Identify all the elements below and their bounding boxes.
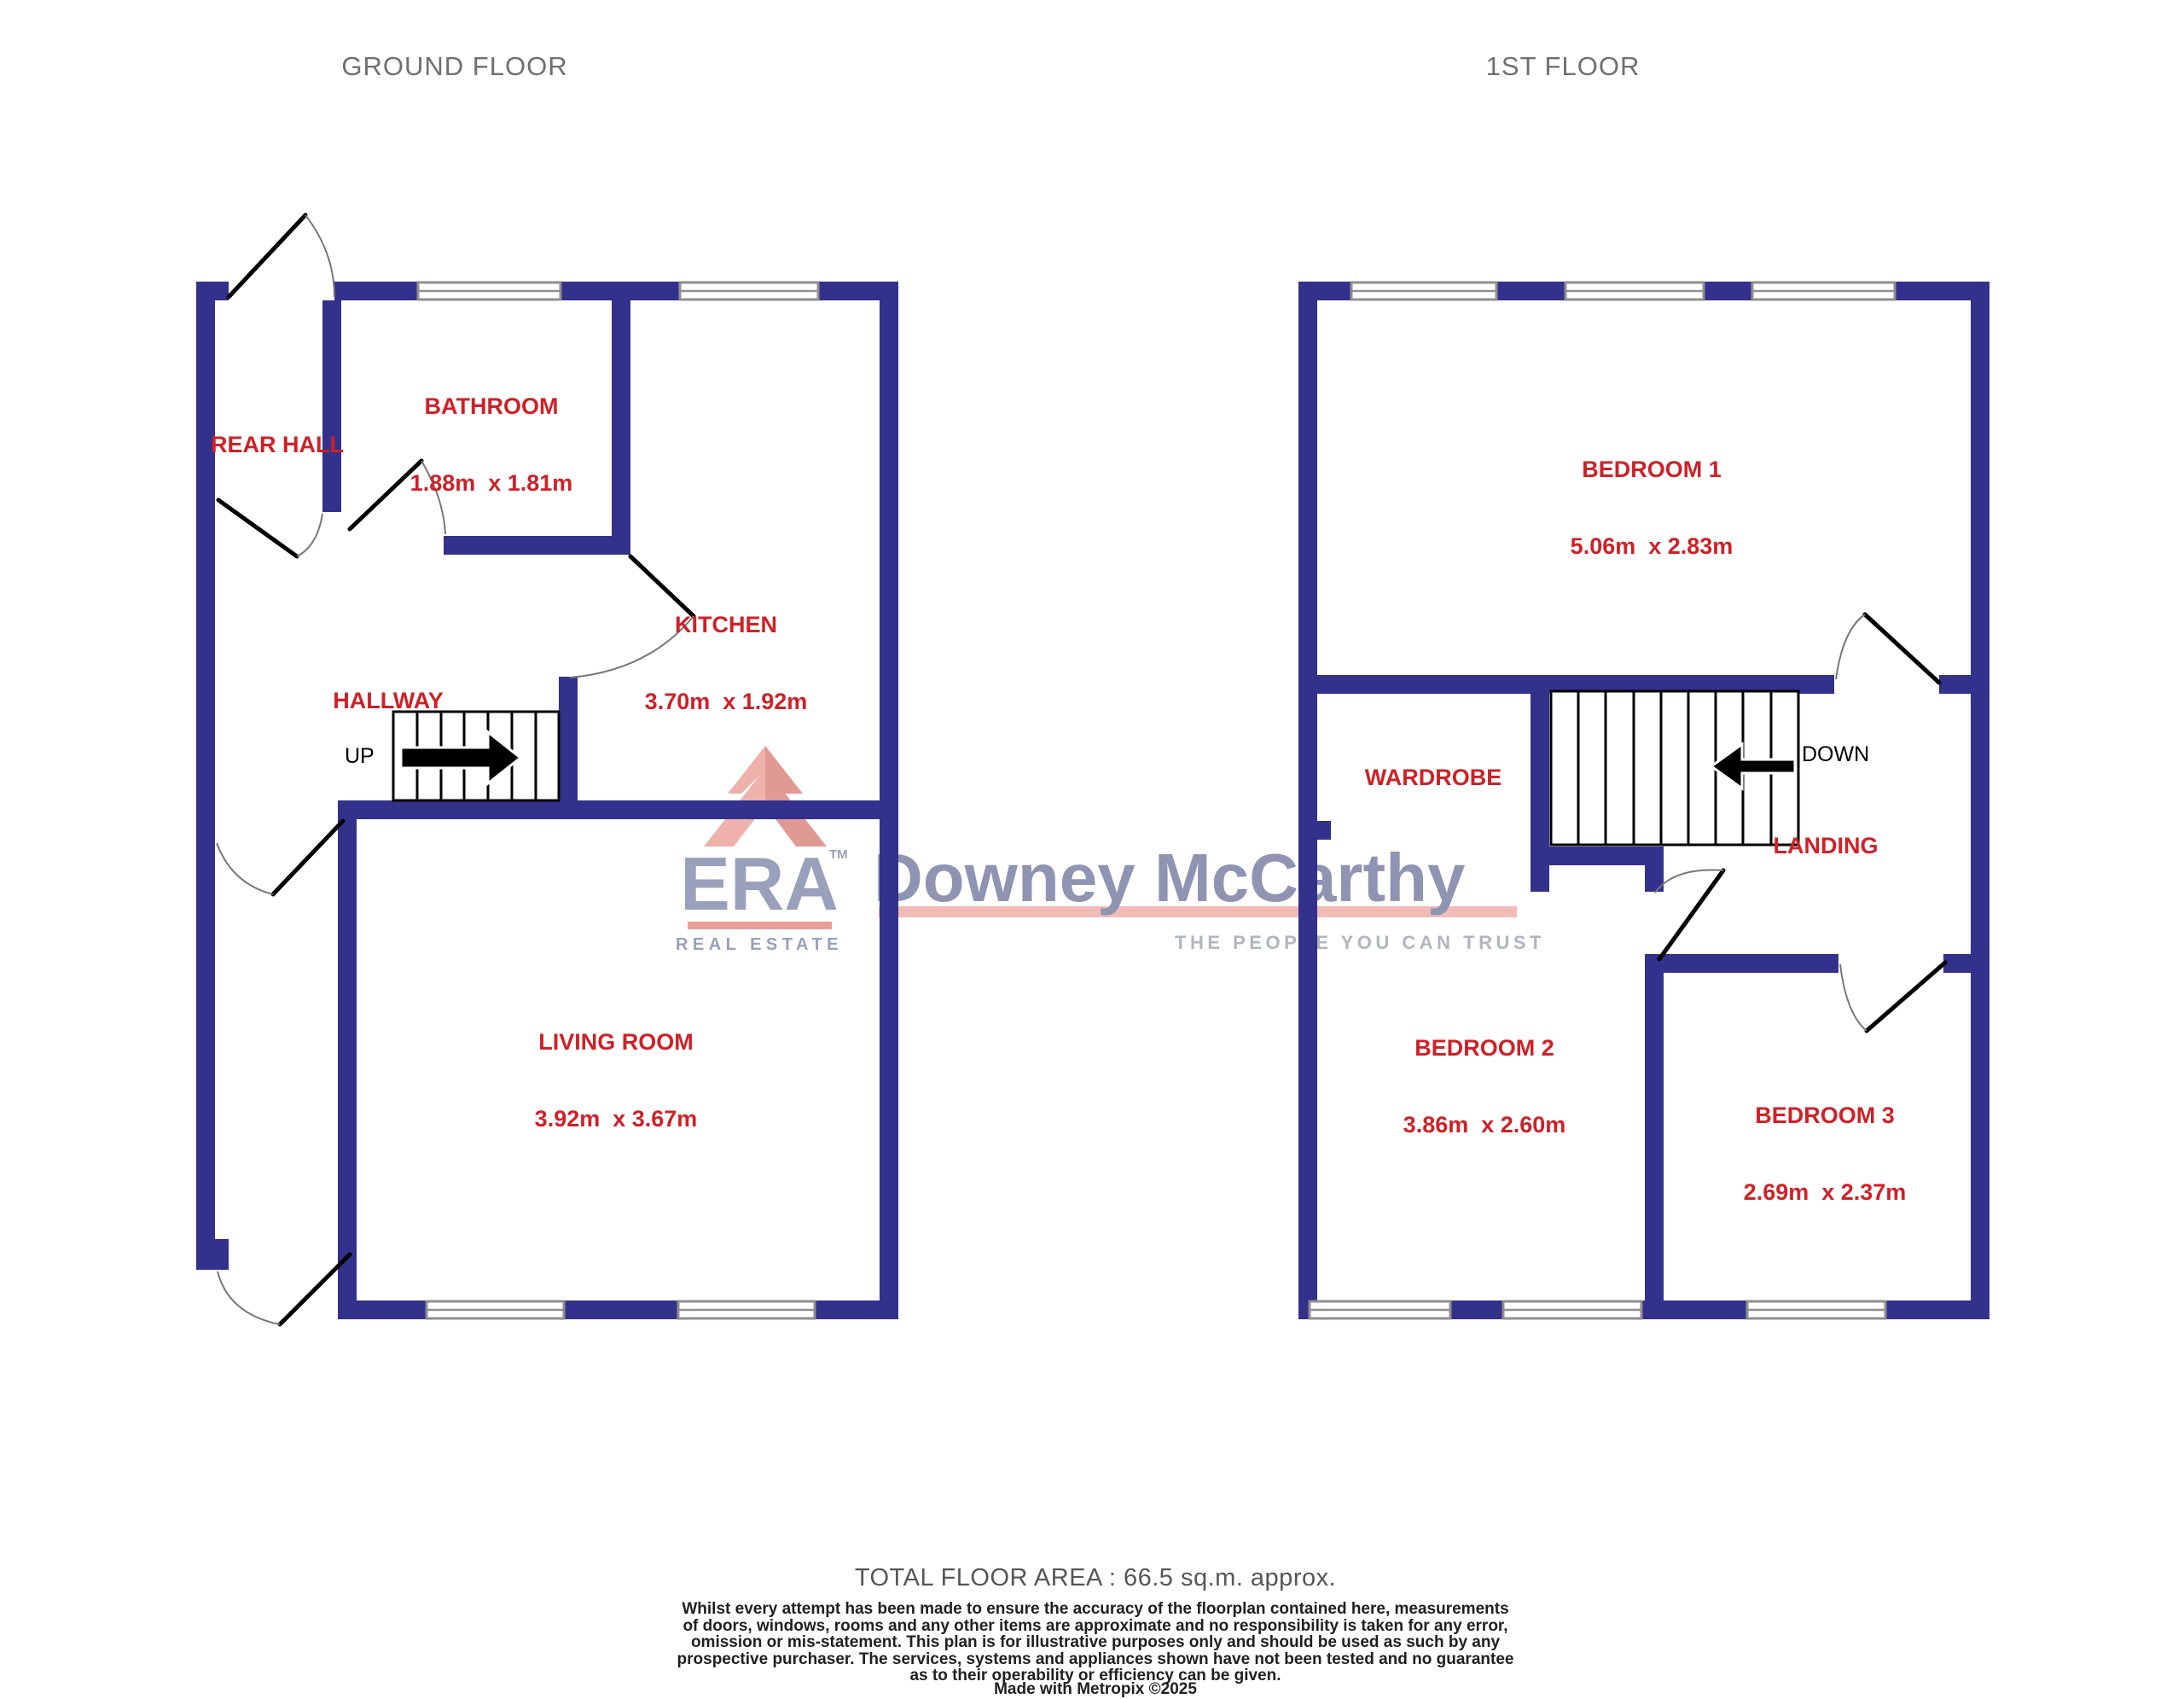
logo-brand-subtitle: REAL ESTATE	[676, 935, 843, 954]
room-name: HALLWAY	[333, 688, 444, 713]
logo-tagline: THE PEOPLE YOU CAN TRUST	[1175, 932, 1545, 953]
logo-agency-name: Downey McCarthy	[874, 840, 1466, 916]
wall-segment	[559, 677, 578, 819]
wall-segment	[1298, 282, 1317, 1319]
wall-segment	[815, 1300, 898, 1319]
wall-segment	[444, 536, 630, 555]
total-floor-area: TOTAL FLOOR AREA : 66.5 sq.m. approx.	[626, 1564, 1565, 1592]
room-name: LANDING	[1774, 833, 1879, 858]
room-label-kitchen: KITCHEN 3.70m x 1.92m	[645, 561, 808, 740]
room-label-living-room: LIVING ROOM 3.92m x 3.67m	[535, 978, 698, 1157]
wall-segment	[1885, 1300, 1989, 1319]
wall-segment	[338, 1300, 427, 1319]
wall-segment	[1971, 282, 1989, 1319]
logo-trademark: TM	[829, 847, 848, 862]
wall-segment	[564, 1300, 678, 1319]
era-roof-icon	[704, 746, 827, 847]
wall-segment	[1317, 821, 1331, 840]
room-dims: 5.06m x 2.83m	[1571, 533, 1734, 559]
wall-segment	[1450, 1300, 1503, 1319]
room-dims: 3.86m x 2.60m	[1403, 1112, 1566, 1138]
wall-segment	[561, 282, 680, 300]
wall-segment	[215, 1239, 229, 1270]
room-name: WARDROBE	[1365, 765, 1502, 790]
room-label-bedroom-1: BEDROOM 1 5.06m x 2.83m	[1571, 405, 1734, 585]
room-name: KITCHEN	[645, 612, 808, 637]
wall-segment	[338, 800, 898, 819]
room-name: BATHROOM	[410, 393, 573, 419]
wall-segment	[338, 819, 357, 1300]
room-dims: 3.70m x 1.92m	[645, 689, 808, 714]
disclaimer-text: Whilst every attempt has been made to en…	[626, 1601, 1565, 1684]
wall-segment	[1704, 282, 1752, 300]
room-name: LIVING ROOM	[535, 1029, 698, 1055]
logo-brand-underline	[688, 922, 832, 929]
first-floor-title: 1ST FLOOR	[1486, 51, 1641, 82]
stairs-down-label: DOWN	[1802, 742, 1869, 767]
room-name: REAR HALL	[211, 432, 344, 457]
wall-segment	[1496, 282, 1565, 300]
room-name: BEDROOM 3	[1744, 1103, 1907, 1128]
room-label-landing: LANDING	[1774, 782, 1879, 884]
room-dims: 1.88m x 1.81m	[410, 470, 573, 496]
room-dims: 2.69m x 2.37m	[1744, 1179, 1907, 1205]
wall-segment	[1645, 865, 1664, 892]
wall-segment	[1645, 973, 1664, 1300]
room-name: BEDROOM 1	[1571, 457, 1734, 482]
logo-brand: ERA	[680, 841, 839, 926]
staircase-down-icon	[1551, 691, 1798, 845]
room-name: BEDROOM 2	[1403, 1035, 1566, 1061]
room-label-wardrobe: WARDROBE	[1365, 713, 1502, 816]
wall-segment	[1939, 675, 1971, 694]
room-label-bedroom-3: BEDROOM 3 2.69m x 2.37m	[1744, 1051, 1907, 1231]
room-label-bedroom-2: BEDROOM 2 3.86m x 2.60m	[1403, 984, 1566, 1163]
wall-segment	[334, 282, 418, 300]
room-label-rear-hall: REAR HALL	[211, 381, 344, 483]
wall-segment	[1531, 847, 1664, 865]
wall-segment	[1645, 954, 1838, 973]
room-label-bathroom: BATHROOM 1.88m x 1.81m	[410, 342, 573, 521]
ground-floor-title: GROUND FLOOR	[341, 51, 567, 82]
room-dims: 3.92m x 3.67m	[535, 1106, 698, 1132]
wall-segment	[612, 300, 630, 555]
wall-segment	[1943, 954, 1971, 973]
wall-segment	[1641, 1300, 1747, 1319]
metropix-credit: Made with Metropix ©2025	[626, 1680, 1565, 1699]
room-label-hallway: HALLWAY	[333, 637, 444, 739]
stairs-up-label: UP	[345, 744, 375, 769]
